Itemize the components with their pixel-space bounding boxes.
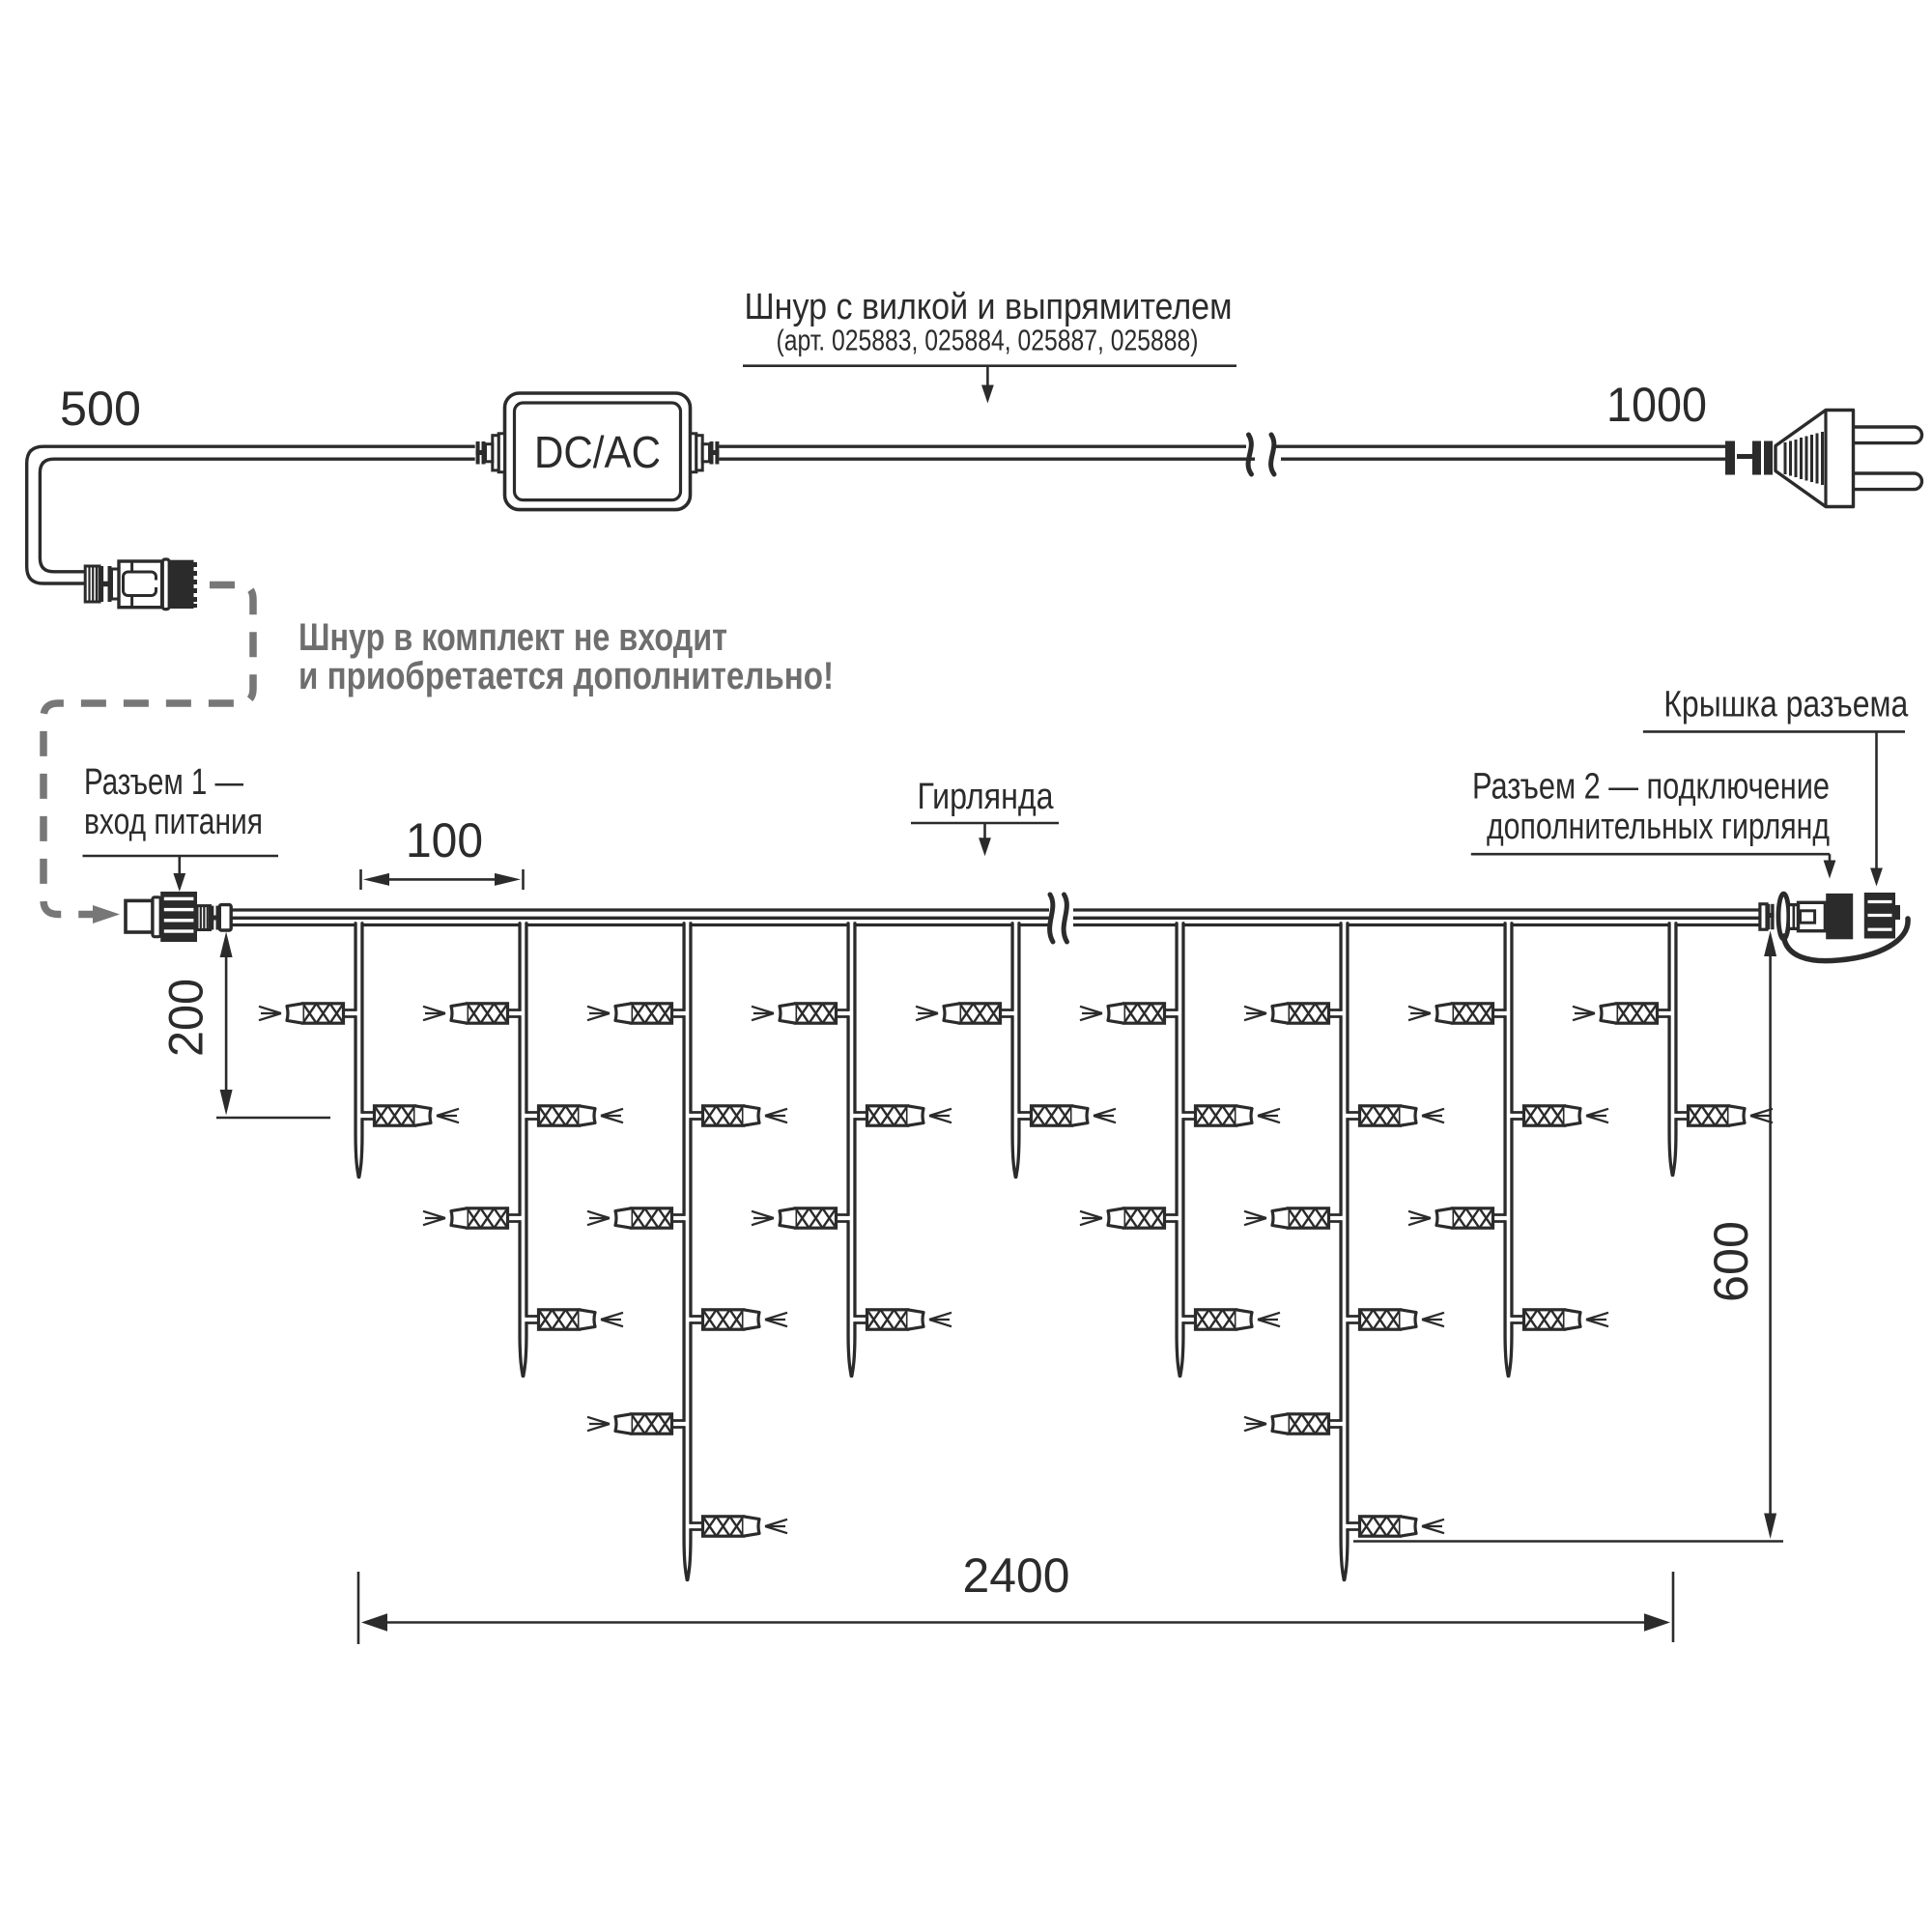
svg-text:Разъем 2 — подключение: Разъем 2 — подключение <box>1472 766 1830 807</box>
svg-text:вход питания: вход питания <box>84 802 263 842</box>
svg-text:Крышка разъема: Крышка разъема <box>1663 684 1909 724</box>
svg-text:600: 600 <box>1704 1221 1758 1302</box>
svg-text:Шнур с вилкой и выпрямителем: Шнур с вилкой и выпрямителем <box>745 287 1233 327</box>
svg-text:Разъем 1 —: Разъем 1 — <box>84 762 243 803</box>
svg-text:(арт. 025883, 025884, 025887,: (арт. 025883, 025884, 025887, 025888) <box>777 323 1199 356</box>
svg-text:Шнур в комплект не входит: Шнур в комплект не входит <box>298 616 727 659</box>
svg-text:и приобретается дополнительно!: и приобретается дополнительно! <box>298 655 834 697</box>
svg-text:200: 200 <box>159 979 213 1057</box>
svg-text:DC/AC: DC/AC <box>534 427 661 477</box>
svg-text:500: 500 <box>60 382 141 436</box>
svg-text:дополнительных гирлянд: дополнительных гирлянд <box>1487 807 1830 847</box>
svg-text:1000: 1000 <box>1606 378 1707 432</box>
svg-text:2400: 2400 <box>963 1548 1070 1603</box>
svg-text:Гирлянда: Гирлянда <box>918 777 1055 817</box>
svg-text:100: 100 <box>406 813 483 867</box>
